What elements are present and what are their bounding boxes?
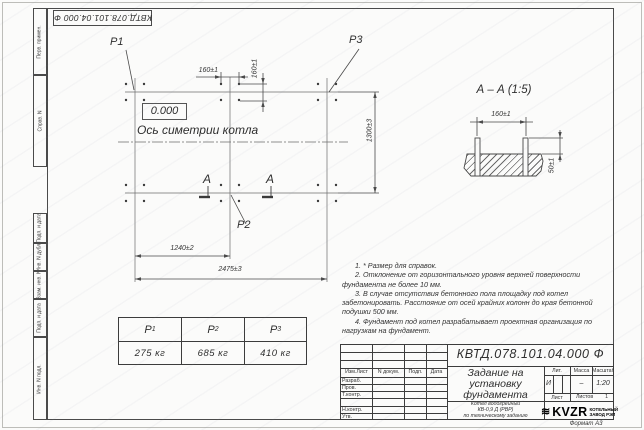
load-table-header-p3: P3 [244, 318, 306, 341]
drawing-sheet: Перв. примен. Справ. N Подп. и дата Инв.… [0, 0, 644, 430]
section-letter-right: А [260, 172, 280, 186]
load-table: P1 P2 P3 275 кг 685 кг 410 кг [118, 317, 307, 365]
title-block-doc-number: КВТД.078.101.04.000 Ф [448, 347, 613, 363]
tb-scale-value: 1:20 [592, 380, 614, 387]
note-2: 2. Отклонение от горизонтального уровня … [342, 270, 605, 289]
tb-row-utv: Утв. [342, 414, 371, 420]
kvzr-logo-caption: КОТЕЛЬНЫЙ ЗАВОД РЭП [589, 407, 618, 417]
format-label: Формат А3 [558, 421, 614, 427]
tb-lit-value: И [544, 380, 553, 387]
tb-row-nkontr: Н.контр. [342, 407, 371, 413]
section-cut-marks [199, 186, 273, 197]
section-letter-left: А [197, 172, 217, 186]
kvzr-logo-caption-line: ЗАВОД РЭП [589, 412, 618, 417]
drawing-subtitle-line: по техническому заданию [448, 414, 543, 420]
drawing-linework [0, 0, 644, 430]
tb-mass-value: – [571, 380, 592, 387]
tb-sheets-cell: Листов 1 [570, 394, 614, 400]
level-mark: 0.000 [142, 103, 187, 120]
tb-row-tkontr: Т.контр. [342, 392, 371, 398]
note-3: 3. В случае отсутствия бетонного пола пл… [342, 289, 605, 317]
section-dim-160: 160±1 [483, 111, 519, 118]
load-table-header-p2: P2 [181, 318, 244, 341]
tb-sheet-label: Лист [545, 395, 569, 401]
tb-header-n-dokum: N докум. [373, 369, 404, 375]
drawing-title-line: фундамента [448, 390, 543, 401]
tb-header-izm-list: Изм.Лист [341, 369, 372, 375]
kvzr-logo-mark-icon: ≋ [541, 407, 550, 417]
symmetry-axis-label: Ось симетрии котла [137, 123, 258, 137]
load-header-sub: 3 [277, 326, 281, 333]
point-label-p1: P1 [110, 36, 123, 48]
tb-lit-header: Лит. [545, 368, 569, 374]
load-table-value-p3: 410 кг [244, 341, 306, 364]
drawing-title: Задание на установку фундамента [448, 368, 543, 401]
load-header-sub: 2 [215, 326, 219, 333]
note-1: 1. * Размер для справок. [342, 261, 605, 270]
tb-header-data: Дата [427, 369, 446, 375]
tb-row-prov: Пров. [342, 385, 371, 391]
load-header-base: P [270, 324, 277, 336]
tb-mass-header: Масса [571, 368, 592, 374]
kvzr-logo-text: KVZR [552, 406, 587, 418]
anchor-bolt-dots [125, 83, 337, 202]
tb-sheets-label: Листов [576, 394, 593, 400]
load-header-base: P [207, 324, 214, 336]
tb-sheets-value: 1 [605, 394, 608, 400]
kvzr-logo: ≋ KVZR КОТЕЛЬНЫЙ ЗАВОД РЭП [545, 403, 614, 420]
tb-row-razrab: Разраб. [342, 378, 371, 384]
point-label-p3: P3 [349, 34, 362, 46]
load-header-base: P [144, 324, 151, 336]
dim-160-horizontal: 160±1 [186, 67, 218, 74]
tb-header-podp: Подп. [405, 369, 426, 375]
kvzr-logo-caption-line: КОТЕЛЬНЫЙ [589, 407, 618, 412]
notes-block: 1. * Размер для справок. 2. Отклонение о… [342, 261, 605, 335]
load-table-header-p1: P1 [119, 318, 181, 341]
section-dim-50: 50±1 [549, 153, 556, 179]
dim-1300: 1300±3 [367, 113, 374, 149]
drawing-subtitle: Котел водогрейный КВ-0,9 Д (РВР) по техн… [448, 402, 543, 420]
tb-scale-header: Масштаб [592, 368, 614, 374]
note-4: 4. Фундамент под котел разрабатывает про… [342, 317, 605, 336]
section-title: А – А (1:5) [458, 84, 550, 96]
load-table-value-p2: 685 кг [181, 341, 244, 364]
point-label-p2: P2 [237, 219, 250, 231]
dim-160-vertical: 160±1 [252, 56, 259, 82]
load-table-value-p1: 275 кг [119, 341, 181, 364]
load-header-sub: 1 [152, 326, 156, 333]
dim-1240: 1240±2 [158, 245, 206, 252]
dim-2475: 2475±3 [206, 266, 254, 273]
